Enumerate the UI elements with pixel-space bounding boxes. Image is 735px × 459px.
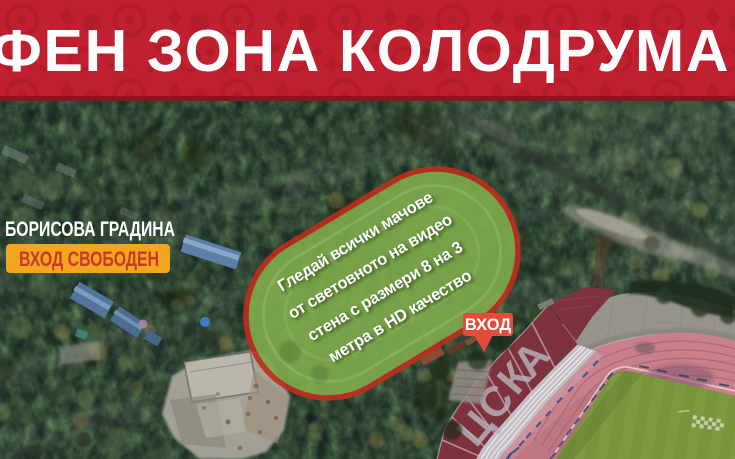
svg-text:БОРИСОВА ГРАДИНА: БОРИСОВА ГРАДИНА bbox=[5, 218, 175, 241]
svg-text:ФЕН ЗОНА КОЛОДРУМА: ФЕН ЗОНА КОЛОДРУМА bbox=[0, 18, 729, 84]
svg-text:ВХОД: ВХОД bbox=[465, 316, 511, 334]
svg-text:ВХОД СВОБОДЕН: ВХОД СВОБОДЕН bbox=[19, 248, 159, 271]
